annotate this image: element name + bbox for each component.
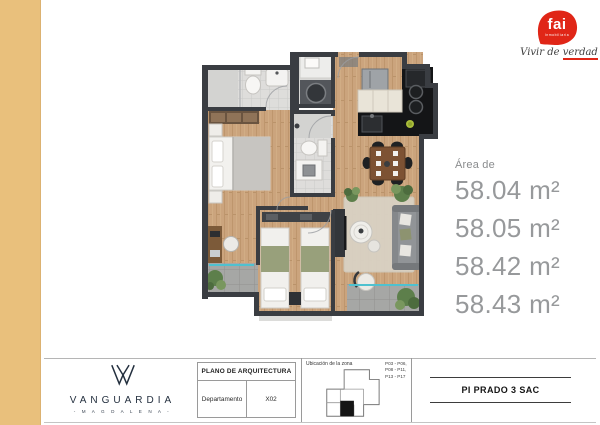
area-value: 58.43 m² (455, 285, 585, 323)
fai-logo-text: fai (536, 16, 578, 33)
side-stripe (0, 0, 41, 425)
zone-box: Ubicación de la zona P03 - P06, P08 - P1… (301, 358, 412, 422)
fai-tagline-prefix: Vivir de (520, 47, 563, 58)
area-panel: Área de 58.04 m² 58.05 m² 58.42 m² 58.43… (455, 159, 585, 323)
floor-plan (180, 45, 450, 340)
vanguardia-subtitle: - M A G D A L E N A - (55, 409, 190, 414)
fai-logo: fai Inmobiliaria Vivir de verdad (520, 6, 598, 64)
brochure-page: fai Inmobiliaria Vivir de verdad Área de… (0, 0, 600, 425)
zone-map-icon (319, 367, 383, 419)
area-value: 58.05 m² (455, 209, 585, 247)
fai-tagline: Vivir de verdad (520, 47, 598, 58)
plan-table-label: Departamento (198, 381, 246, 417)
area-label: Área de (455, 159, 585, 171)
area-value: 58.42 m² (455, 247, 585, 285)
fai-logo-subtext: Inmobiliaria (536, 33, 578, 37)
plan-table-value: X02 (246, 381, 295, 417)
laundry-closet (300, 54, 333, 106)
vanguardia-logo: VANGUARDIA - M A G D A L E N A - (55, 362, 190, 414)
developer-box: PI PRADO 3 SAC (430, 377, 571, 403)
plan-table-header: PLANO DE ARQUITECTURA (198, 363, 295, 381)
zone-units: P03 - P06, P08 - P11, P13 - P17 (385, 361, 407, 380)
vanguardia-title: VANGUARDIA (55, 395, 190, 406)
plan-table-row: Departamento X02 (198, 381, 295, 417)
plan-table: PLANO DE ARQUITECTURA Departamento X02 (197, 362, 296, 418)
area-value: 58.04 m² (455, 171, 585, 209)
vanguardia-monogram-icon (109, 362, 137, 387)
dining-area (363, 142, 413, 186)
footer-bottom-divider (44, 422, 596, 423)
fai-tagline-underlined: verdad (563, 47, 598, 60)
developer-name: PI PRADO 3 SAC (430, 385, 571, 395)
zone-units-line: P13 - P17 (385, 374, 407, 380)
zone-units-line: P08 - P11, (385, 367, 407, 373)
